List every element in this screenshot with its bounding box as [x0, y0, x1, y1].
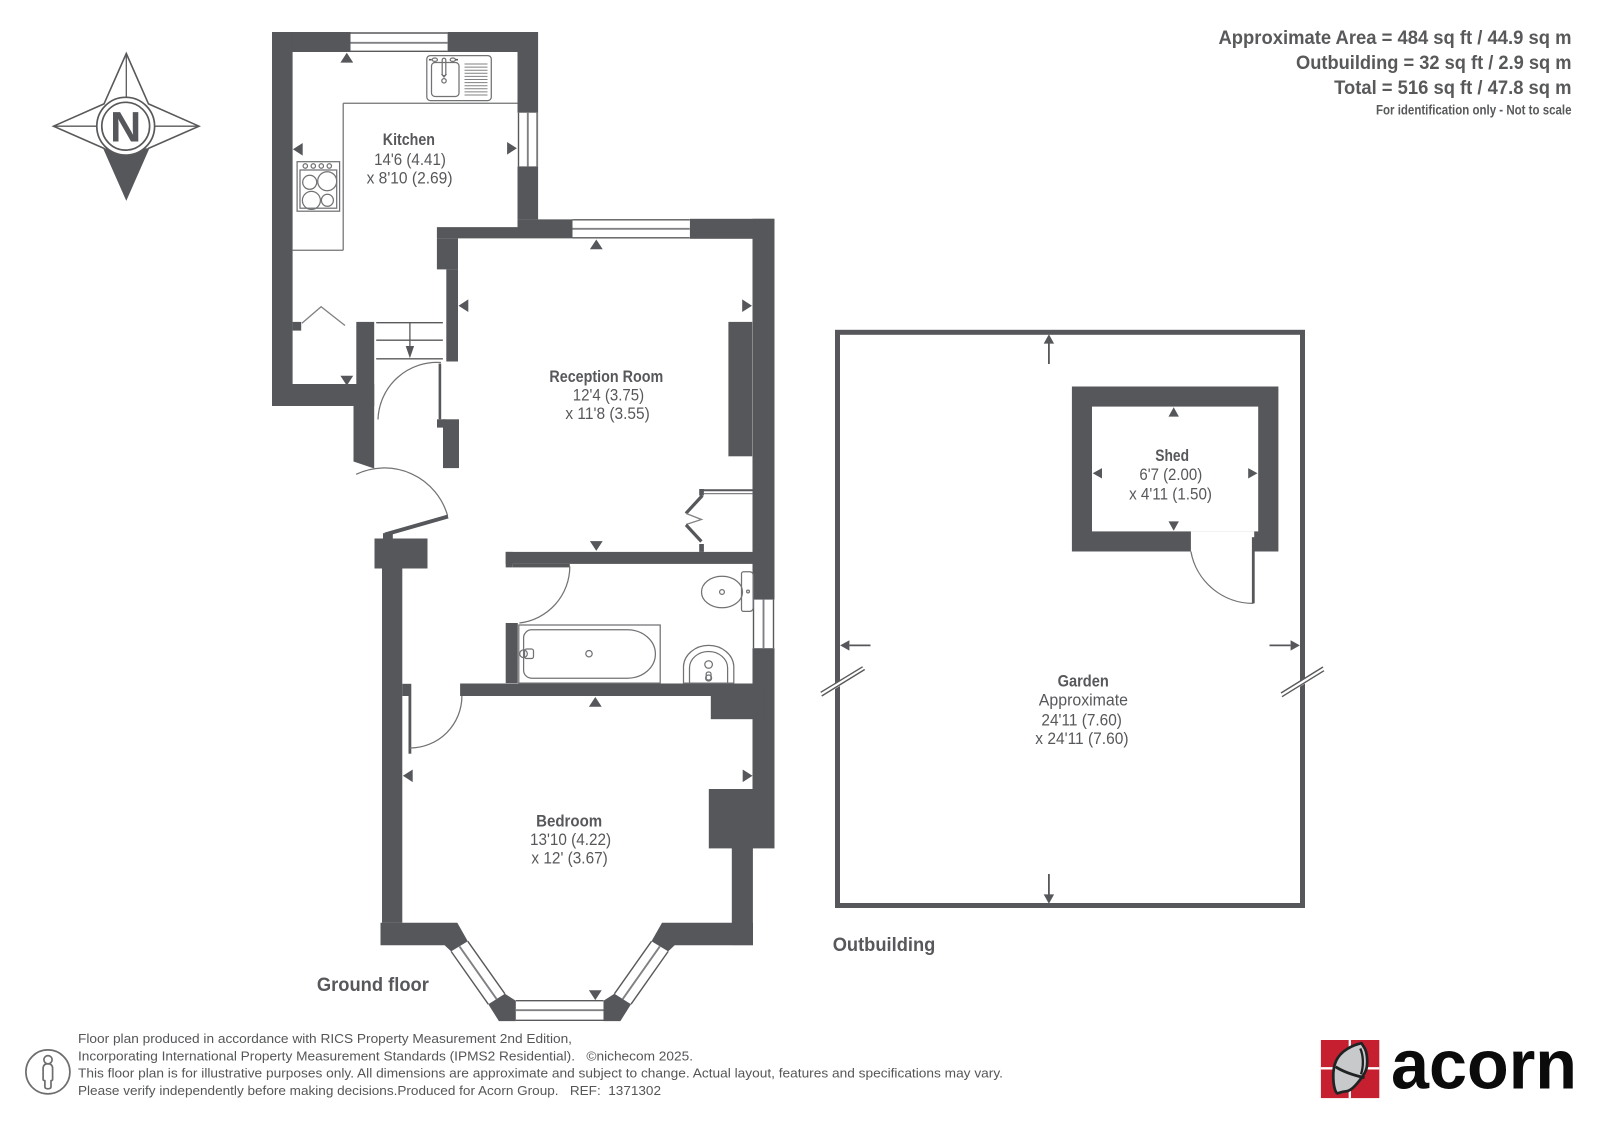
svg-text:Total = 516 sq ft / 47.8 sq m: Total = 516 sq ft / 47.8 sq m	[1334, 78, 1571, 99]
svg-text:Approximate Area = 484 sq ft /: Approximate Area = 484 sq ft / 44.9 sq m	[1219, 28, 1572, 49]
svg-text:This floor plan is for illustr: This floor plan is for illustrative purp…	[78, 1066, 1003, 1081]
svg-text:x 11'8 (3.55): x 11'8 (3.55)	[565, 405, 649, 423]
svg-text:Garden: Garden	[1058, 672, 1109, 690]
svg-text:6'7 (2.00): 6'7 (2.00)	[1139, 466, 1202, 484]
svg-text:For identification only - Not: For identification only - Not to scale	[1376, 103, 1572, 118]
svg-text:x 12' (3.67): x 12' (3.67)	[531, 849, 607, 867]
svg-text:Floor plan produced in accorda: Floor plan produced in accordance with R…	[78, 1031, 572, 1046]
svg-text:12'4 (3.75): 12'4 (3.75)	[573, 386, 644, 404]
svg-text:Outbuilding = 32 sq ft / 2.9 s: Outbuilding = 32 sq ft / 2.9 sq m	[1296, 53, 1572, 74]
svg-text:Reception Room: Reception Room	[549, 368, 663, 386]
svg-text:Kitchen: Kitchen	[383, 131, 435, 149]
svg-text:N: N	[110, 104, 141, 152]
svg-text:x 24'11 (7.60): x 24'11 (7.60)	[1035, 730, 1128, 748]
svg-text:Approximate: Approximate	[1039, 692, 1128, 710]
svg-text:Outbuilding: Outbuilding	[833, 935, 936, 956]
svg-text:Bedroom: Bedroom	[536, 812, 602, 830]
svg-text:x 8'10 (2.69): x 8'10 (2.69)	[367, 169, 453, 187]
svg-text:acorn: acorn	[1391, 1026, 1577, 1104]
svg-text:Ground floor: Ground floor	[317, 975, 430, 996]
svg-text:14'6 (4.41): 14'6 (4.41)	[374, 151, 446, 169]
svg-text:Shed: Shed	[1155, 447, 1189, 465]
svg-text:24'11 (7.60): 24'11 (7.60)	[1041, 711, 1122, 729]
svg-text:13'10 (4.22): 13'10 (4.22)	[530, 831, 611, 849]
svg-text:Incorporating International Pr: Incorporating International Property Mea…	[78, 1048, 693, 1063]
svg-text:x 4'11 (1.50): x 4'11 (1.50)	[1129, 486, 1212, 504]
svg-text:Please verify independently be: Please verify independently before makin…	[78, 1083, 661, 1098]
